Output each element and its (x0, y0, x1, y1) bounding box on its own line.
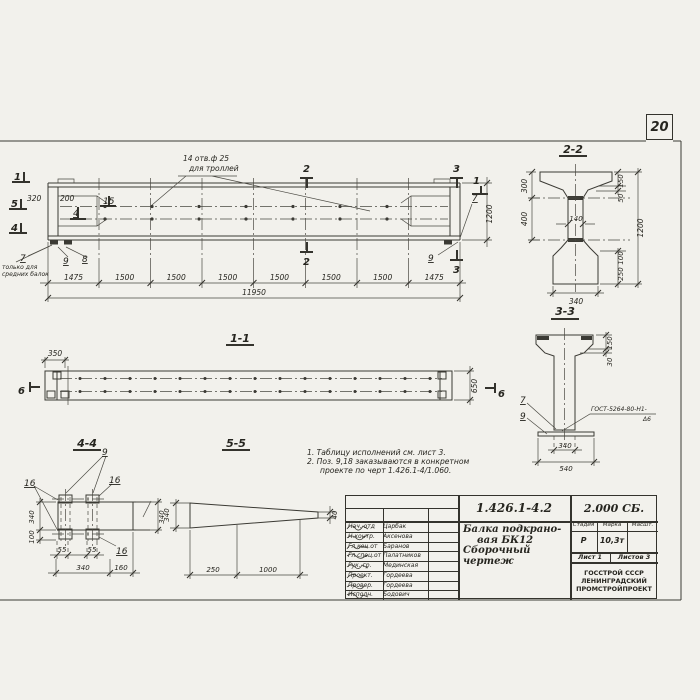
dim-1200: 1200 (485, 204, 494, 223)
dim-340-bottom-sec4: 340 (76, 564, 90, 572)
tb-line (346, 508, 458, 509)
section-2-2: 2-2 300 400 140 150 50 100 250 1200 340 (520, 143, 645, 306)
pos-9-sec3: 9 (520, 412, 526, 422)
signature-row: Провер. Гордеева (346, 581, 456, 591)
section-1-1: 1-1 350 650 6 6 (18, 332, 505, 405)
hole-note-line1: 14 отв.ф 25 (183, 154, 229, 163)
signature-row: Проект. Гордеева (346, 571, 456, 581)
title-block: 1.426.1-4.2 2.000 СБ. Балка подкрано- ва… (345, 495, 657, 599)
dim-150: 150 (617, 174, 625, 188)
dim-160: 160 (114, 564, 128, 572)
pos-16-right: 16 (109, 476, 121, 486)
dim-total-11950: 11950 (242, 288, 266, 297)
pos-8: 8 (82, 255, 88, 265)
section-4-4: 4-4 9 16 16 16 340 100 340 55 55 340 160 (24, 437, 166, 577)
section-4-4-title: 4-4 (76, 437, 97, 450)
drawing-title-line1: Балка подкрано- (463, 525, 561, 536)
signature-row: Гл.кон.от Баранов (346, 542, 456, 552)
plan-holes (79, 377, 432, 393)
dim-1475b: 1475 (425, 273, 444, 282)
signature-row: Гл.спец.от Палатников (346, 551, 456, 561)
pos-7-note-line2: средних балок (2, 271, 49, 278)
note-line2: 2. Поз. 9,18 заказываются в конкретном (307, 457, 469, 466)
weld-size: Δ6 (642, 416, 651, 423)
signature-row: Нач. отд Царбак (346, 522, 456, 532)
name: Гордеева (383, 571, 428, 581)
dim-1500c: 1500 (218, 273, 237, 282)
dim-1475a: 1475 (64, 273, 83, 282)
page-number: 20 (650, 120, 668, 135)
dim-320: 320 (27, 194, 42, 203)
dim-250: 250 (206, 566, 220, 574)
section-marker-5: 5 (11, 199, 18, 210)
dim-100: 100 (28, 530, 36, 544)
dim-400: 400 (520, 212, 529, 227)
main-elevation-view: 14 отв.ф 25 для троллей 1 5 4 320 200 15… (2, 154, 494, 302)
section-marker-2-top: 2 (303, 164, 310, 175)
signature-row: Рук. гр. Мединская (346, 561, 456, 571)
stage-value: Р (570, 531, 597, 552)
col-mark: Марка (597, 521, 627, 531)
section-2-2-title: 2-2 (563, 143, 583, 156)
section-3-3: 3-3 7 9 ГОСТ-5264-80-Н1- Δ6 150 30 340 5… (520, 305, 656, 473)
name: Палатников (383, 551, 428, 561)
col-scale: Масшт. (627, 521, 658, 531)
doc-number: 1.426.1-4.2 (458, 496, 570, 521)
dim-55a: 55 (58, 546, 67, 554)
dim-150-sec3: 150 (606, 336, 614, 350)
dim-55b: 55 (88, 546, 97, 554)
drawing-sheet: 14 отв.ф 25 для троллей 1 5 4 320 200 15… (0, 0, 700, 700)
pos-9-right: 9 (428, 254, 434, 264)
dim-300: 300 (520, 179, 529, 194)
section-cut-marks (9, 172, 488, 260)
name: Аксенова (383, 532, 428, 542)
name: Бодович (383, 590, 428, 600)
name: Гордеева (383, 581, 428, 591)
org-line1: ГОССТРОЙ СССР (584, 569, 644, 577)
page-number-box: 20 (646, 114, 673, 140)
section-marker-6-right: 6 (498, 389, 505, 400)
dim-100: 100 (617, 251, 625, 265)
drawing-title-line3: Сборочный чертеж (463, 546, 570, 567)
dim-1500d: 1500 (270, 273, 289, 282)
pos-9: 9 (63, 257, 69, 267)
pos-7-note-line1: только для (2, 264, 38, 271)
col-stage: Стадия (570, 521, 597, 531)
signature-row: Исполн. Бодович (346, 590, 456, 600)
dim-1200-sec: 1200 (636, 218, 645, 237)
dim-140: 140 (569, 215, 583, 223)
pos-9-sec4: 9 (102, 448, 108, 458)
dim-350: 350 (48, 349, 63, 358)
pos-4: 4 (73, 209, 79, 219)
pos-7: 7 (20, 254, 26, 264)
dim-540-sec3: 540 (559, 465, 573, 473)
note-line3: проекте по черт 1.426.1-4/1.060. (320, 466, 451, 475)
dim-1500a: 1500 (115, 273, 134, 282)
notes: 1. Таблицу исполнений см. лист 3. 2. Поз… (307, 448, 469, 475)
dim-250: 250 (617, 267, 625, 281)
support-plates (50, 241, 452, 245)
note-line1: 1. Таблицу исполнений см. лист 3. (307, 448, 446, 457)
section-3-3-title: 3-3 (555, 305, 575, 318)
dim-30-sec3: 30 (606, 357, 614, 366)
pos-16-bottom: 16 (116, 547, 128, 557)
org-line2: ЛЕНИНГРАДСКИЙ (581, 577, 647, 585)
sheet-number: Лист 1 (570, 552, 610, 562)
section-marker-1-right: 1 (473, 176, 480, 187)
trolley-holes (103, 205, 388, 221)
pos-7-right: 7 (472, 194, 478, 204)
section-marker-2-bottom: 2 (303, 257, 310, 268)
section-marker-3-top: 3 (453, 164, 460, 175)
dim-40: 40 (331, 510, 339, 519)
pos-15: 15 (103, 197, 115, 207)
signature-row: Н.контр. Аксенова (346, 532, 456, 542)
section-1-1-title: 1-1 (230, 332, 250, 345)
dim-340-left: 340 (28, 510, 36, 524)
dim-1500b: 1500 (167, 273, 186, 282)
org-line3: ПРОМСТРОЙПРОЕКТ (576, 585, 652, 593)
dim-1500f: 1500 (373, 273, 392, 282)
name: Царбак (383, 522, 428, 532)
dim-1000: 1000 (259, 566, 277, 574)
dim-50: 50 (617, 193, 625, 202)
dim-200: 200 (60, 194, 75, 203)
section-marker-3-bottom: 3 (453, 265, 460, 276)
name: Баранов (383, 542, 428, 552)
pos-16-left: 16 (24, 479, 36, 489)
dim-1500e: 1500 (322, 273, 341, 282)
weld-note: ГОСТ-5264-80-Н1- (591, 406, 647, 413)
section-marker-1: 1 (14, 172, 21, 183)
dim-650: 650 (470, 379, 479, 394)
doc-code: 2.000 СБ. (570, 496, 658, 521)
section-marker-4: 4 (10, 223, 18, 234)
mass-value: 10,3т (597, 531, 627, 552)
name: Мединская (383, 561, 428, 571)
dim-340-sec3: 340 (558, 442, 572, 450)
section-5-5-title: 5-5 (226, 437, 246, 450)
pos-7-sec3: 7 (520, 396, 526, 406)
dim-340-sec5: 340 (163, 508, 171, 522)
hole-note-line2: для троллей (188, 164, 239, 173)
organization: ГОССТРОЙ СССР ЛЕНИНГРАДСКИЙ ПРОМСТРОЙПРО… (570, 562, 658, 600)
section-marker-6-left: 6 (18, 386, 25, 397)
sheets-total: Листов 3 (610, 552, 658, 562)
drawing-title: Балка подкрано- вая БК12 Сборочный черте… (458, 521, 570, 561)
